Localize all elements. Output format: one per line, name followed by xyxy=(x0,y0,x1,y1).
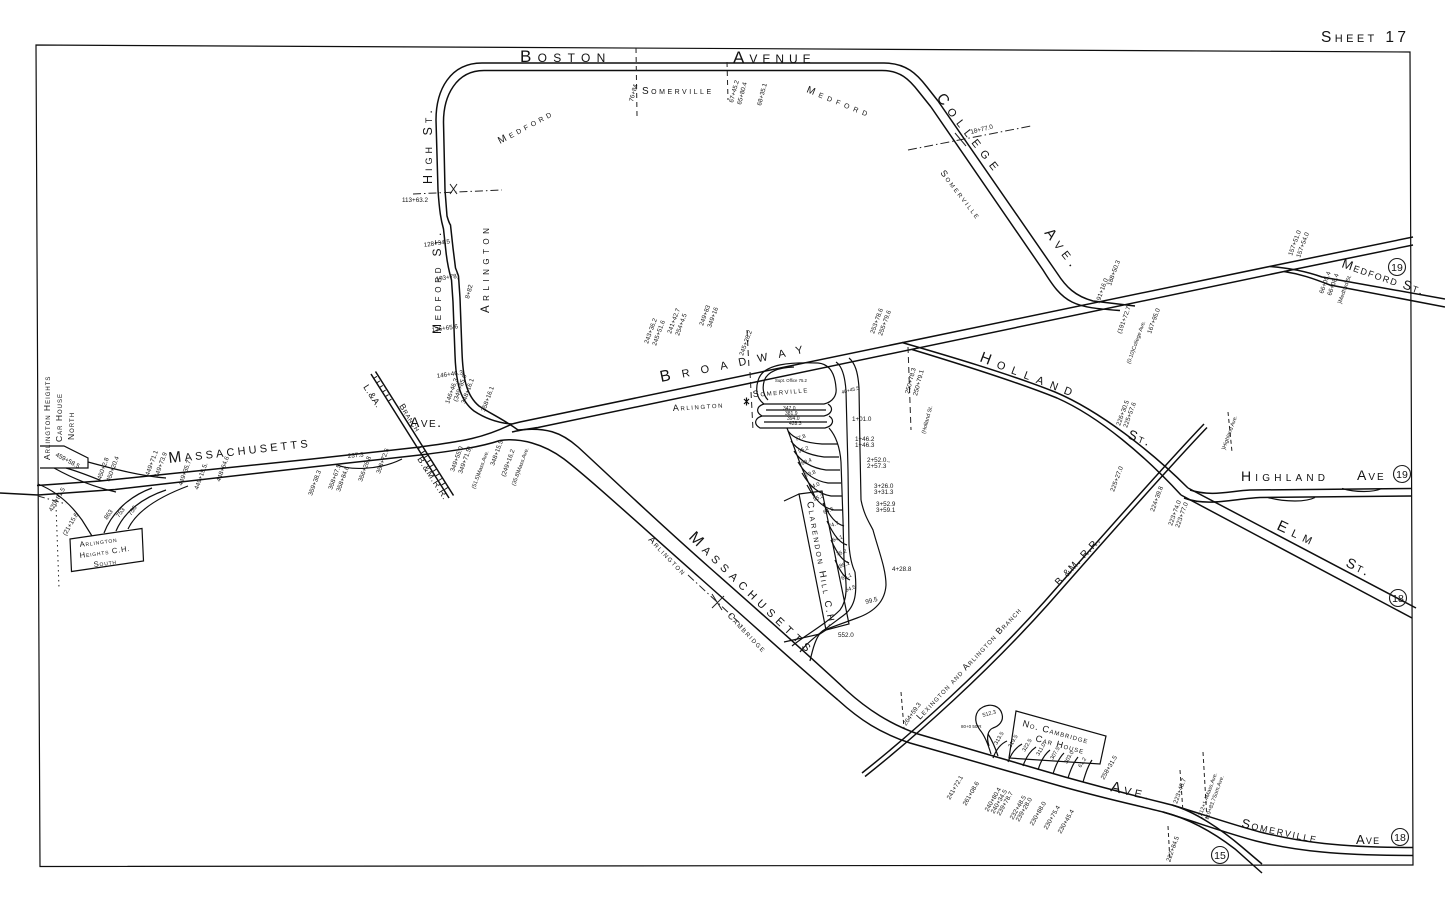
svg-text:Highland: Highland xyxy=(1241,468,1329,484)
svg-text:80+0 50'R: 80+0 50'R xyxy=(961,724,982,729)
svg-text:Supt. Office 75.2: Supt. Office 75.2 xyxy=(775,378,808,383)
svg-text:Ave: Ave xyxy=(1356,832,1380,847)
svg-text:428.3: 428.3 xyxy=(789,421,802,427)
svg-text:Sheet 17: Sheet 17 xyxy=(1321,29,1409,46)
svg-text:113+63.2: 113+63.2 xyxy=(402,197,428,204)
svg-text:Somerville: Somerville xyxy=(642,86,714,97)
svg-text:15: 15 xyxy=(1214,850,1226,862)
svg-text:Arlington Heights: Arlington Heights xyxy=(42,376,52,460)
svg-text:19: 19 xyxy=(1396,469,1408,481)
svg-text:19: 19 xyxy=(1391,262,1403,274)
svg-text:18: 18 xyxy=(1392,593,1404,605)
svg-text:1+46.3: 1+46.3 xyxy=(855,442,875,449)
svg-text:North: North xyxy=(66,412,76,440)
svg-text:1+01.0: 1+01.0 xyxy=(852,416,872,423)
svg-text:552.0: 552.0 xyxy=(838,632,854,639)
svg-text:Car House: Car House xyxy=(54,393,64,442)
svg-text:Boston: Boston xyxy=(520,47,612,66)
svg-text:4+28.8: 4+28.8 xyxy=(892,566,912,573)
svg-text:Arlington: Arlington xyxy=(480,224,492,313)
svg-text:3+31.3: 3+31.3 xyxy=(874,489,894,496)
svg-text:2+57.3: 2+57.3 xyxy=(867,463,887,470)
svg-text:Avenue: Avenue xyxy=(733,48,816,67)
svg-text:High St.: High St. xyxy=(421,106,435,184)
svg-text:3+59.1: 3+59.1 xyxy=(876,507,896,514)
svg-text:Ave: Ave xyxy=(1357,467,1386,483)
svg-text:18: 18 xyxy=(1394,832,1406,844)
